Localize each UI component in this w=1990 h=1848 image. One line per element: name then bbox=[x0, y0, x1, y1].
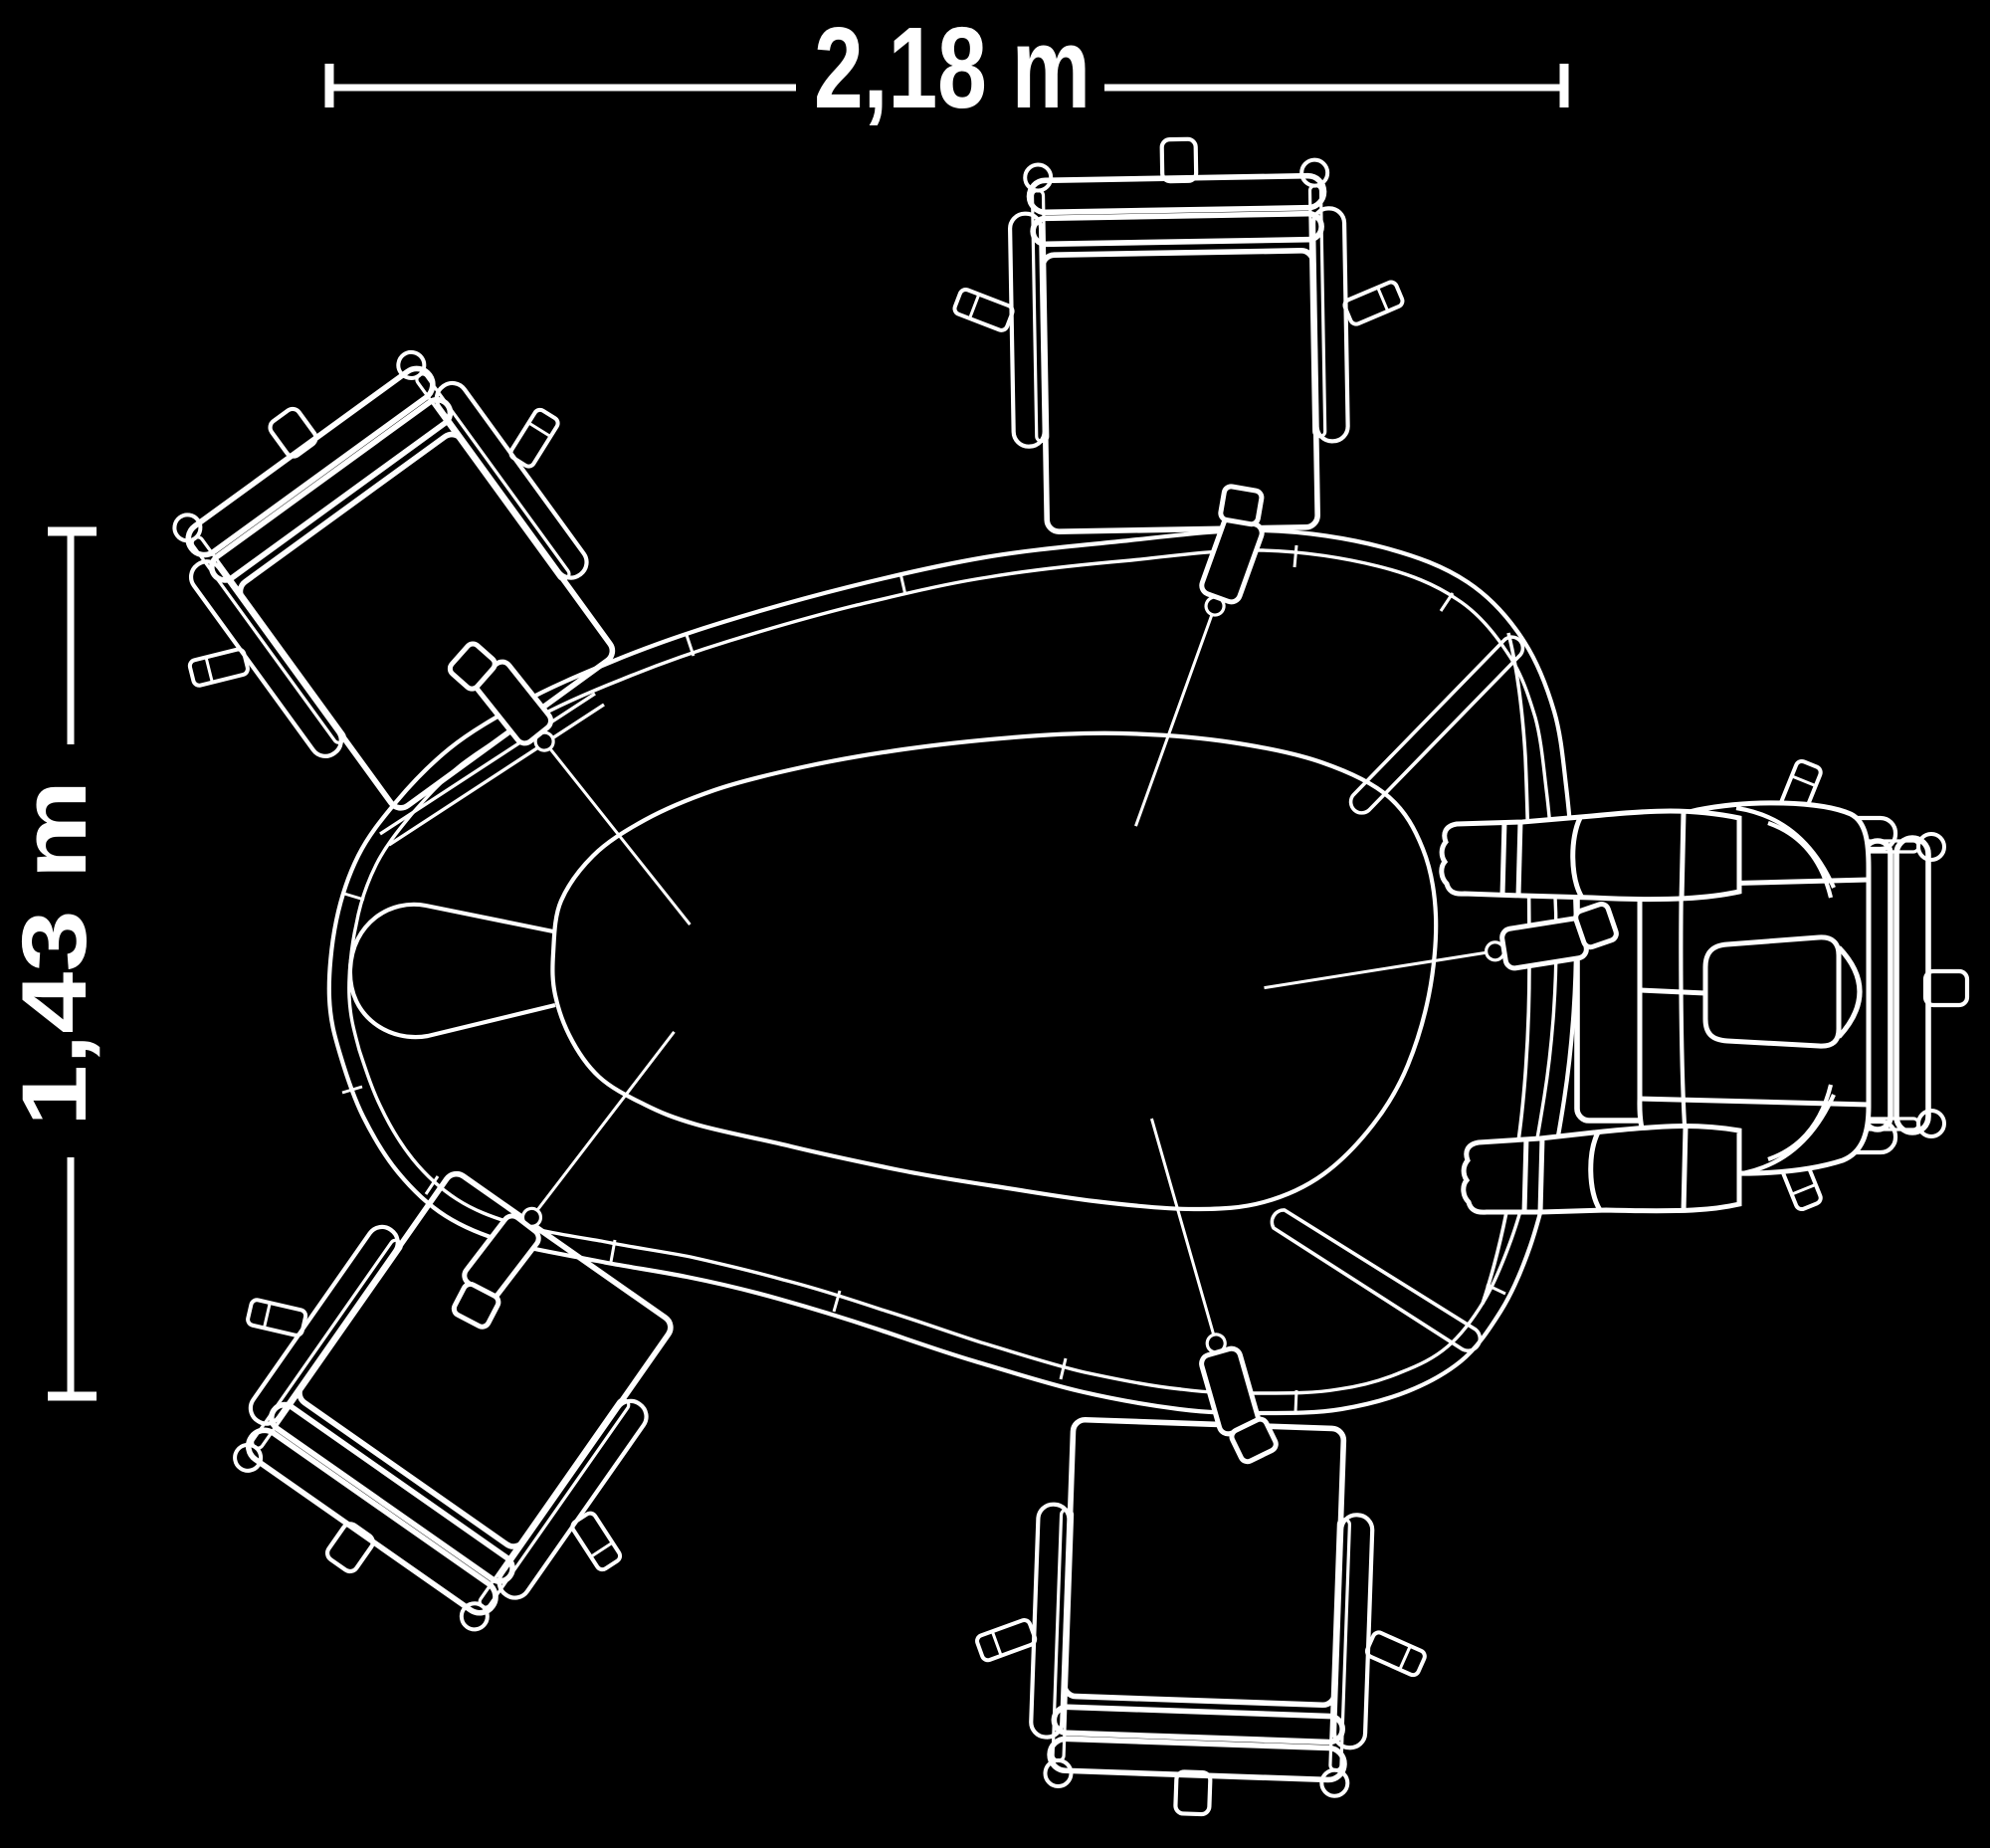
svg-text:1,43 m: 1,43 m bbox=[4, 780, 105, 1127]
svg-text:2,18 m: 2,18 m bbox=[814, 3, 1091, 132]
